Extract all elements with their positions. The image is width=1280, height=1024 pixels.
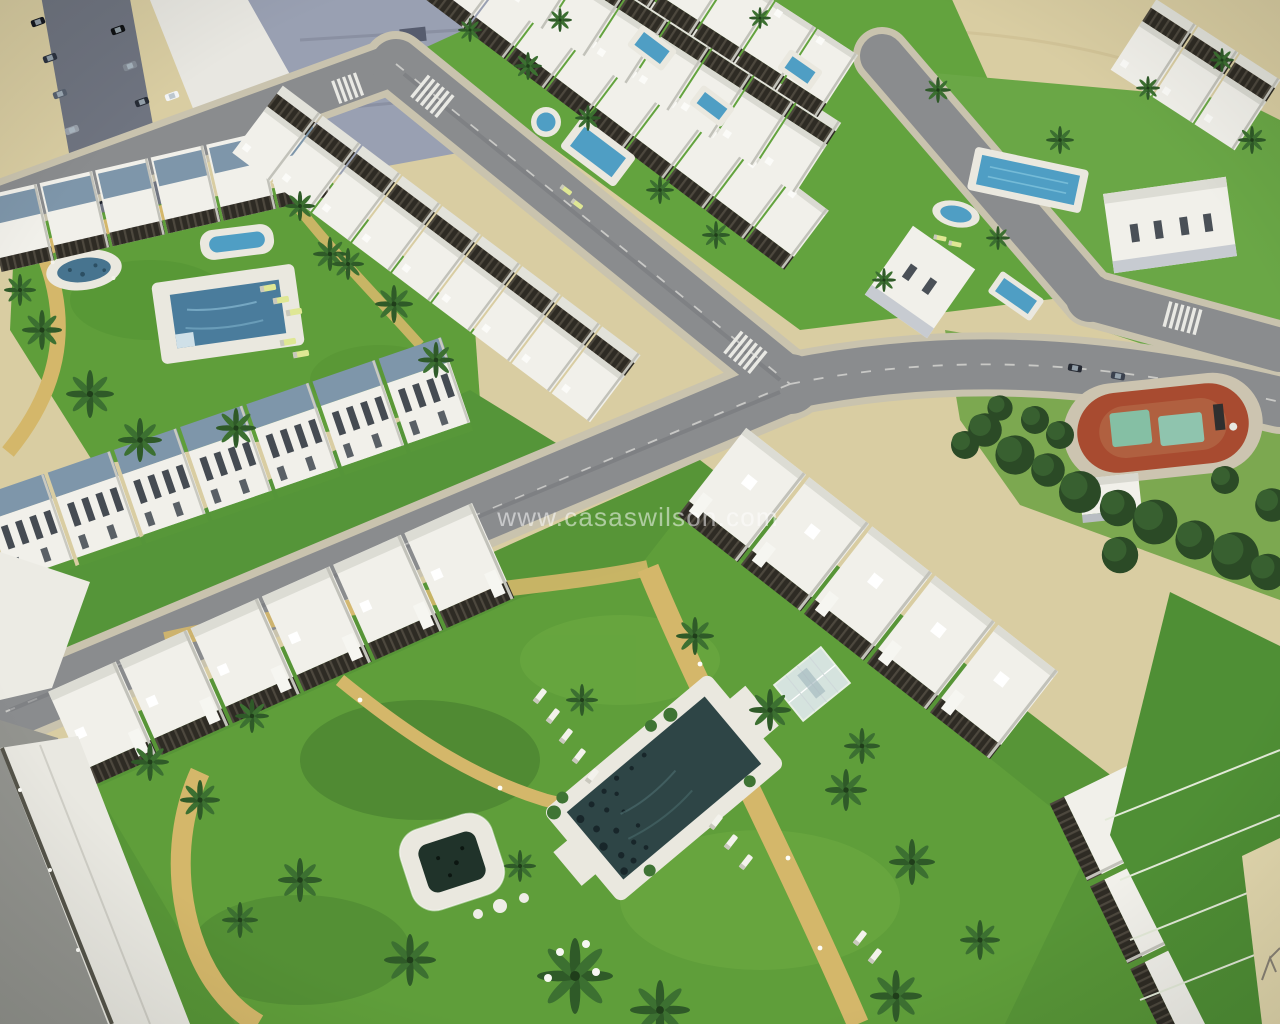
render-image: www.casaswilson.com (0, 0, 1280, 1024)
watermark-text: www.casaswilson.com (496, 502, 778, 532)
aerial-render-canvas: www.casaswilson.com (0, 0, 1280, 1024)
